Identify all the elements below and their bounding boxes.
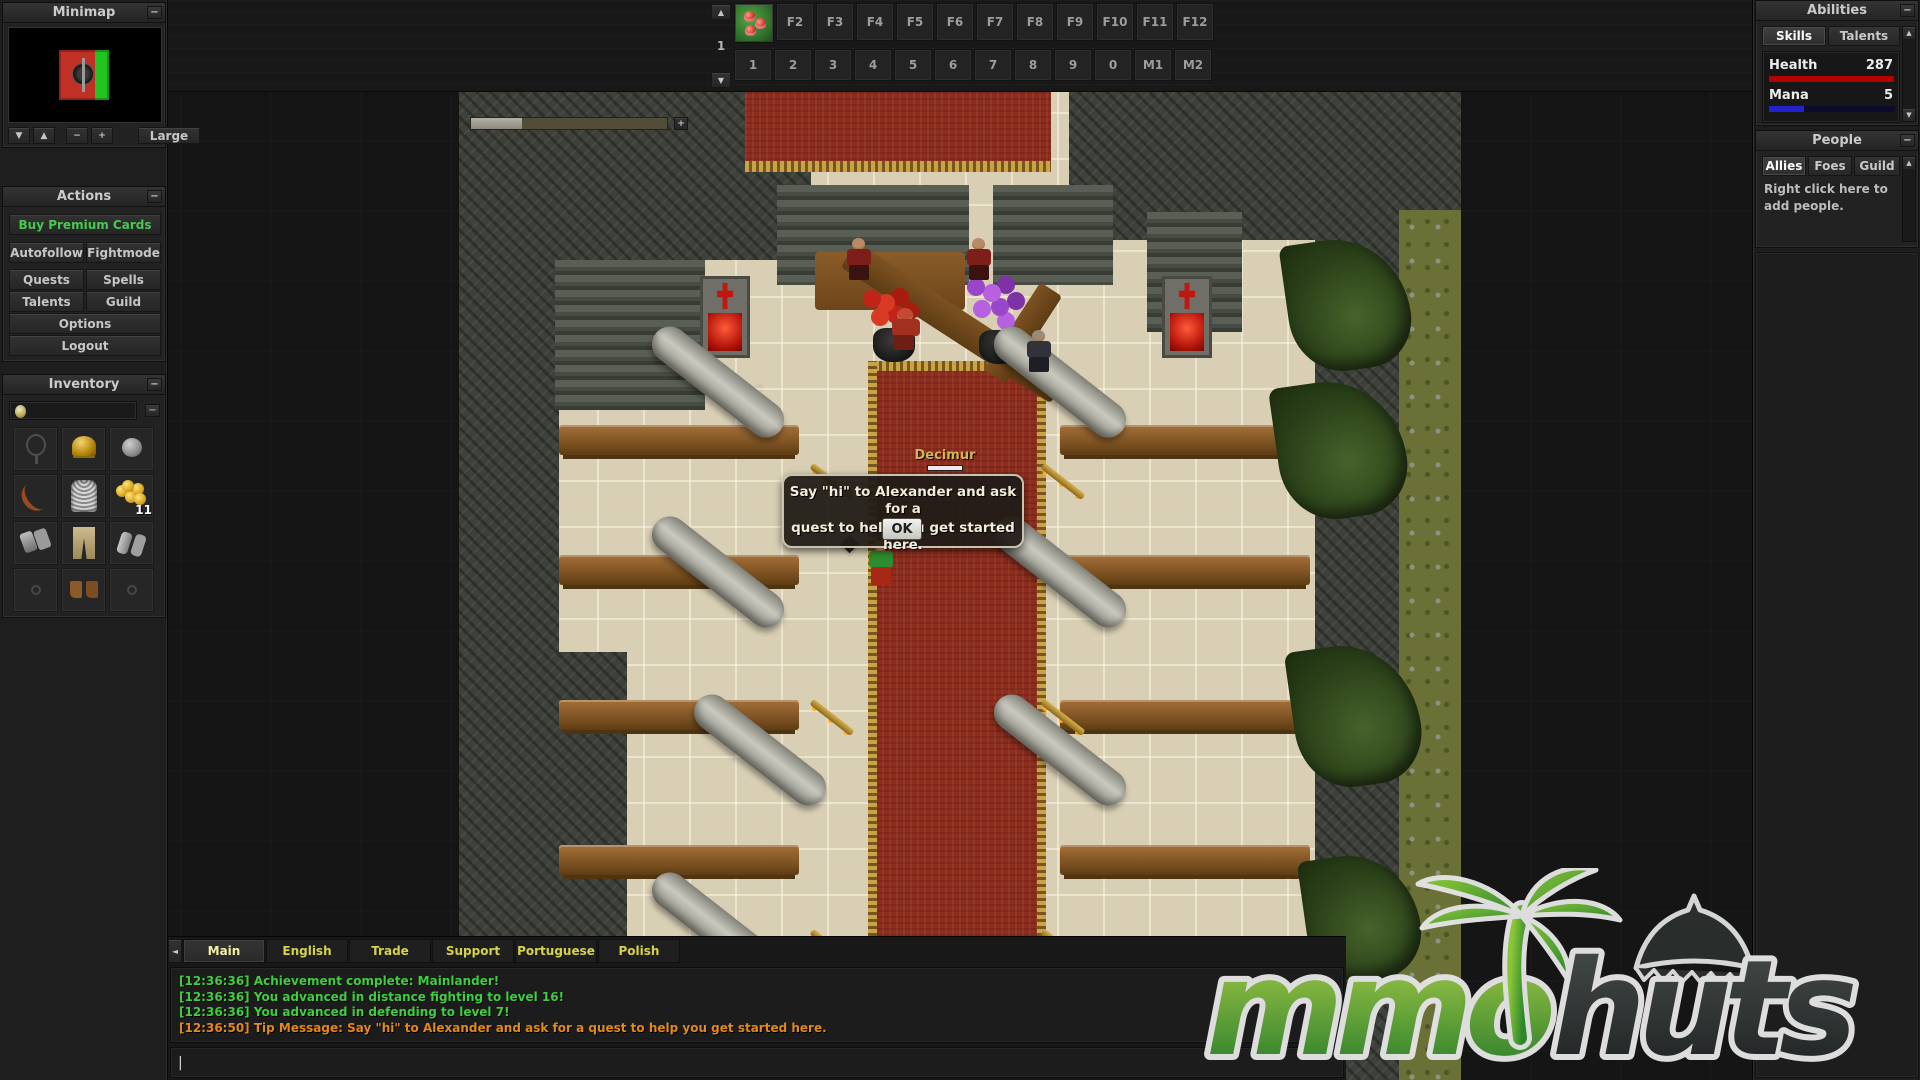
left-sidebar: Minimap − ▼ ▲ − + Large Actions − Buy Pr…: [0, 0, 168, 1080]
chat-message: [12:36:36] You advanced in distance figh…: [179, 990, 1335, 1006]
chat-tab-english[interactable]: English: [266, 939, 348, 963]
game-viewport[interactable]: Decimur Alex Say "hi" to Alexander and a…: [459, 92, 1461, 1080]
health-label: Health: [1769, 58, 1817, 73]
hotkey-button-6[interactable]: 6: [935, 50, 971, 80]
game-client: ▲ 1 ▼ F2 F3 F4 F5 F6 F7 F8 F9 F10 F11: [0, 0, 1920, 1080]
hotkey-button-m1[interactable]: M1: [1135, 50, 1171, 80]
chain-armor-icon: [71, 480, 97, 512]
container-bar[interactable]: −: [9, 401, 137, 420]
chat-message-text: You advanced in defending to level 7!: [254, 1005, 510, 1019]
hotkey-button-f12[interactable]: F12: [1177, 4, 1213, 40]
actions-title: Actions: [57, 189, 111, 204]
npc-red-creature[interactable]: [890, 308, 924, 350]
health-bar-fill: [1769, 76, 1894, 82]
inventory-panel: Inventory − − 11: [2, 374, 166, 618]
chat-timestamp: [12:36:36]: [179, 990, 250, 1004]
hotkey-button-0[interactable]: 0: [1095, 50, 1131, 80]
experience-bar-fill: [471, 118, 522, 129]
bench: [559, 845, 799, 875]
tab-allies[interactable]: Allies: [1762, 156, 1806, 176]
abilities-title: Abilities: [1807, 3, 1867, 18]
inventory-slot-necklace[interactable]: [13, 427, 58, 471]
people-hint: Right click here to add people.: [1764, 181, 1904, 215]
inventory-slot-ring-right[interactable]: [109, 568, 154, 612]
mana-bar: [1769, 106, 1895, 112]
hotbar-group-down-button[interactable]: ▼: [711, 72, 731, 88]
boots-icon: [70, 581, 82, 598]
people-title: People: [1812, 133, 1862, 148]
inventory-slot-ring-left[interactable]: [13, 568, 58, 612]
npc-figure[interactable]: [1025, 330, 1055, 368]
hotkey-button-f9[interactable]: F9: [1057, 4, 1093, 40]
bow-icon: [16, 476, 56, 517]
mushroom-icon: [745, 25, 756, 36]
chat-message: [12:36:50] Tip Message: Say "hi" to Alex…: [179, 1021, 1335, 1037]
center-right-stairs: [993, 185, 1113, 285]
inventory-slot-armor[interactable]: [61, 474, 106, 518]
hotkey-button-5[interactable]: 5: [895, 50, 931, 80]
guild-button[interactable]: Guild: [86, 291, 161, 312]
numkey-row: 1 2 3 4 5 6 7 8 9 0 M1 M2: [735, 50, 1213, 80]
minimap-view[interactable]: [8, 27, 162, 123]
minimap-zoom-in-button[interactable]: +: [91, 127, 113, 144]
hotkey-button-f10[interactable]: F10: [1097, 4, 1133, 40]
minimap-large-button[interactable]: Large: [138, 127, 200, 144]
chat-timestamp: [12:36:36]: [179, 1005, 250, 1019]
ring-slot-icon: [31, 585, 41, 595]
inventory-slot-legs[interactable]: [61, 521, 106, 565]
tip-dialog: Say "hi" to Alexander and ask for a ques…: [782, 474, 1024, 548]
red-shrine-right: [1162, 276, 1212, 358]
container-collapse-button[interactable]: −: [145, 404, 160, 417]
hotbar-group-switcher: ▲ 1 ▼: [711, 4, 731, 88]
bench: [1060, 700, 1310, 730]
hotkey-button-m2[interactable]: M2: [1175, 50, 1211, 80]
chat-timestamp: [12:36:36]: [179, 974, 250, 988]
text-cursor: |: [178, 1055, 183, 1071]
tab-talents[interactable]: Talents: [1828, 26, 1900, 46]
abilities-scrollbar[interactable]: ▲ ▼: [1902, 26, 1916, 122]
talents-button[interactable]: Talents: [9, 291, 84, 312]
hotkey-slot-f1-mushrooms-icon[interactable]: [735, 4, 773, 42]
npc-health-bar: [928, 466, 962, 470]
minimap-header: Minimap −: [3, 3, 165, 23]
actions-header: Actions −: [3, 187, 165, 207]
health-row: Health 287: [1769, 58, 1893, 73]
chat-console: ◄ Main English Trade Support Portuguese …: [168, 936, 1346, 1080]
tab-foes[interactable]: Foes: [1808, 156, 1852, 176]
fightmode-button[interactable]: Fightmode: [86, 242, 161, 263]
tab-guild[interactable]: Guild: [1854, 156, 1900, 176]
chat-tab-support[interactable]: Support: [432, 939, 514, 963]
health-value: 287: [1866, 58, 1893, 73]
experience-bar: [470, 117, 668, 130]
hotkey-button-4[interactable]: 4: [855, 50, 891, 80]
chat-message-text: Tip Message: Say "hi" to Alexander and a…: [254, 1021, 827, 1035]
right-sidebar: Abilities − Skills Talents ▲ ▼ Health 28…: [1752, 0, 1920, 1080]
mana-label: Mana: [1769, 88, 1809, 103]
options-button[interactable]: Options: [9, 313, 161, 334]
ok-button[interactable]: OK: [882, 518, 922, 540]
badge-icon: [15, 405, 26, 418]
buy-premium-cards-button[interactable]: Buy Premium Cards: [9, 214, 161, 235]
inventory-slot-gloves[interactable]: [13, 521, 58, 565]
actions-panel: Actions − Buy Premium Cards Autofollow F…: [2, 186, 166, 362]
inventory-slot-coins[interactable]: 11: [109, 474, 154, 518]
minimap-collapse-button[interactable]: −: [147, 6, 162, 19]
mushroom-icon: [755, 18, 766, 29]
candelabra: [804, 690, 860, 746]
minimap-panel: Minimap − ▼ ▲ − + Large: [2, 2, 166, 148]
hut-icon: [1636, 896, 1752, 985]
mushroom-icon: [744, 11, 755, 22]
hotkey-button-f4[interactable]: F4: [857, 4, 893, 40]
hotkey-button-1[interactable]: 1: [735, 50, 771, 80]
candelabra: [1035, 690, 1091, 746]
inventory-title: Inventory: [49, 377, 120, 392]
chat-message-text: You advanced in distance fighting to lev…: [254, 990, 564, 1004]
abilities-collapse-button[interactable]: −: [1900, 4, 1915, 17]
chat-message-text: Achievement complete: Mainlander!: [254, 974, 499, 988]
inventory-header: Inventory −: [3, 375, 165, 395]
gloves-icon: [19, 530, 38, 553]
chat-timestamp: [12:36:50]: [179, 1021, 250, 1035]
hotkey-button-7[interactable]: 7: [975, 50, 1011, 80]
mana-value: 5: [1884, 88, 1893, 103]
hotkey-button-f6[interactable]: F6: [937, 4, 973, 40]
scroll-up-icon[interactable]: ▲: [1903, 27, 1915, 39]
minimap-floor-up-button[interactable]: ▲: [33, 127, 55, 144]
bench: [559, 700, 799, 730]
npc-guard[interactable]: [965, 238, 993, 282]
autofollow-button[interactable]: Autofollow: [9, 242, 84, 263]
people-scrollbar[interactable]: ▲: [1902, 156, 1916, 242]
inventory-slot-helmet[interactable]: [61, 427, 106, 471]
minimap-title: Minimap: [53, 5, 116, 20]
legs-icon: [73, 527, 95, 559]
people-panel: People − Allies Foes Guild ▲ Right click…: [1755, 130, 1919, 248]
npc-guard[interactable]: [845, 238, 873, 282]
hotbar-group-number: 1: [711, 20, 731, 72]
minimap-image: [59, 50, 109, 100]
hotkey-button-f5[interactable]: F5: [897, 4, 933, 40]
necklace-slot-icon: [26, 434, 46, 456]
minimap-floor-down-button[interactable]: ▼: [8, 127, 30, 144]
npc-name-label: Decimur: [885, 448, 1005, 463]
actions-collapse-button[interactable]: −: [147, 190, 162, 203]
scroll-up-icon[interactable]: ▲: [1903, 157, 1915, 169]
hotkey-button-8[interactable]: 8: [1015, 50, 1051, 80]
inventory-slot-bow[interactable]: [13, 474, 58, 518]
people-header: People −: [1756, 131, 1918, 151]
hotkey-button-f3[interactable]: F3: [817, 4, 853, 40]
logout-button[interactable]: Logout: [9, 335, 161, 356]
chat-tabs-scroll-left-button[interactable]: ◄: [168, 939, 182, 963]
health-bar: [1769, 76, 1895, 82]
hotkey-button-9[interactable]: 9: [1055, 50, 1091, 80]
quests-button[interactable]: Quests: [9, 269, 84, 290]
hotkey-button-2[interactable]: 2: [775, 50, 811, 80]
right-sidebar-empty-area: [1755, 252, 1919, 1078]
spells-button[interactable]: Spells: [86, 269, 161, 290]
abilities-header: Abilities −: [1756, 1, 1918, 21]
chat-message: [12:36:36] Achievement complete: Mainlan…: [179, 974, 1335, 990]
hotbar-group-up-button[interactable]: ▲: [711, 4, 731, 20]
mana-row: Mana 5: [1769, 88, 1893, 103]
coin-count: 11: [135, 503, 152, 517]
inventory-collapse-button[interactable]: −: [147, 378, 162, 391]
people-hint-line2: add people.: [1764, 198, 1904, 215]
chat-tab-bar: ◄ Main English Trade Support Portuguese …: [168, 939, 680, 963]
stone-ball-icon: [122, 438, 142, 457]
dialog-text-line1: Say "hi" to Alexander and ask for a: [784, 484, 1022, 518]
altar-carpet: [745, 92, 1051, 172]
chat-tab-portuguese[interactable]: Portuguese: [515, 939, 597, 963]
mana-bar-fill: [1769, 106, 1804, 112]
people-collapse-button[interactable]: −: [1900, 134, 1915, 147]
chat-input[interactable]: |: [170, 1047, 1344, 1078]
hotkey-button-f11[interactable]: F11: [1137, 4, 1173, 40]
minimap-controls: ▼ ▲ − + Large: [8, 127, 200, 144]
abilities-panel: Abilities − Skills Talents ▲ ▼ Health 28…: [1755, 0, 1919, 126]
chat-tab-polish[interactable]: Polish: [598, 939, 680, 963]
chat-log[interactable]: [12:36:36] Achievement complete: Mainlan…: [170, 967, 1344, 1043]
tab-skills[interactable]: Skills: [1762, 26, 1826, 46]
chat-tab-main[interactable]: Main: [183, 939, 265, 963]
hotkey-button-f7[interactable]: F7: [977, 4, 1013, 40]
scroll-down-icon[interactable]: ▼: [1903, 109, 1915, 121]
people-hint-line1: Right click here to: [1764, 181, 1904, 198]
chat-tab-trade[interactable]: Trade: [349, 939, 431, 963]
ring-slot-icon: [127, 585, 137, 595]
red-flowers: [863, 290, 881, 308]
helmet-icon: [72, 436, 96, 456]
experience-bar-expand-button[interactable]: +: [674, 117, 688, 130]
bracers-icon: [116, 531, 133, 555]
candelabra: [1035, 454, 1091, 510]
minimap-zoom-out-button[interactable]: −: [66, 127, 88, 144]
hotkey-button-f2[interactable]: F2: [777, 4, 813, 40]
fkey-row: F2 F3 F4 F5 F6 F7 F8 F9 F10 F11 F12: [735, 4, 1213, 42]
inventory-slot-bracers[interactable]: [109, 521, 154, 565]
red-shrine-left: [700, 276, 750, 358]
hotkey-button-3[interactable]: 3: [815, 50, 851, 80]
chat-message: [12:36:36] You advanced in defending to …: [179, 1005, 1335, 1021]
bench: [1060, 845, 1310, 875]
stats-box: Health 287 Mana 5: [1762, 51, 1900, 123]
inventory-slot-stone[interactable]: [109, 427, 154, 471]
hotkey-button-f8[interactable]: F8: [1017, 4, 1053, 40]
inventory-slot-boots[interactable]: [61, 568, 106, 612]
hotkey-bar: ▲ 1 ▼ F2 F3 F4 F5 F6 F7 F8 F9 F10 F11: [711, 4, 1213, 88]
